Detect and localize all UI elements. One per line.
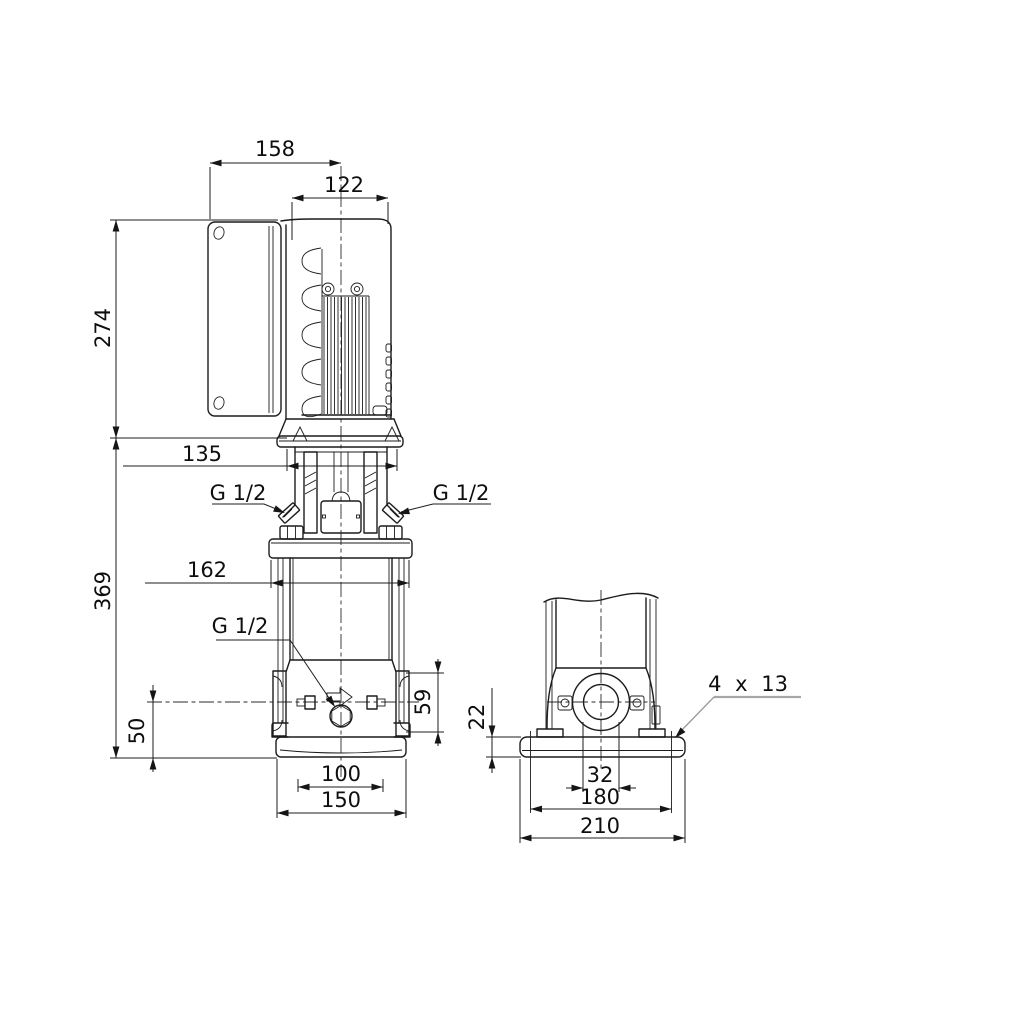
g12-right-label: G 1/2	[433, 481, 490, 505]
gauge-plug-right	[367, 696, 377, 709]
port-flange-right	[396, 671, 409, 736]
head-flange	[269, 539, 412, 558]
gauge-plug-left	[305, 696, 315, 709]
motor-fins	[324, 297, 366, 414]
front-view-pump-head	[269, 447, 412, 558]
hex-plug-right	[379, 526, 402, 539]
dim-135-label: 135	[182, 442, 222, 466]
dim-59-label: 59	[411, 689, 435, 716]
hex-plug-left	[280, 526, 303, 539]
g12-left-label: G 1/2	[210, 481, 267, 505]
dim-122-label: 122	[324, 173, 364, 197]
motor-screw-icon	[322, 283, 363, 295]
label-g12-vent-left: G 1/2	[210, 481, 287, 516]
dimension-59: 59	[406, 659, 444, 746]
label-mounting-holes: 4 x 13	[673, 672, 801, 740]
dim-22-label: 22	[465, 704, 489, 731]
front-view-motor	[208, 219, 403, 447]
dimension-122: 122	[292, 173, 388, 240]
g12-drain-label: G 1/2	[212, 614, 269, 638]
dimension-158: 158	[210, 137, 341, 219]
dim-162-label: 162	[187, 558, 227, 582]
pump-dimensional-drawing: 158 122 274 369 135	[0, 0, 1024, 1024]
side-view	[520, 593, 685, 757]
pump-dimensional-drawing-page: 158 122 274 369 135	[0, 0, 1024, 1024]
dimension-180: 180	[531, 785, 672, 812]
holes-label: 4 x 13	[708, 672, 788, 696]
clamp-left	[558, 696, 572, 710]
dim-158-label: 158	[255, 137, 295, 161]
port-flange-left	[273, 671, 286, 736]
dimension-162: 162	[145, 558, 409, 588]
dim-274-label: 274	[91, 308, 115, 348]
dim-32-label: 32	[587, 763, 614, 787]
dim-150-label: 150	[321, 788, 361, 812]
dim-100-label: 100	[321, 762, 361, 786]
guard-hatch	[305, 472, 376, 494]
dim-210-label: 210	[580, 814, 620, 838]
label-g12-vent-right: G 1/2	[397, 481, 491, 517]
dimension-50: 50	[125, 685, 156, 772]
box-screw-icon	[212, 395, 225, 410]
vent-plug-left	[278, 503, 300, 524]
foot-pad-right	[639, 729, 665, 737]
dimension-22: 22	[465, 688, 521, 773]
box-screw-icon	[212, 225, 225, 240]
foot-pad-left	[537, 729, 563, 737]
dimension-274: 274	[91, 220, 287, 438]
motor-stool	[277, 419, 403, 447]
label-g12-drain: G 1/2	[212, 614, 338, 709]
dim-50-label: 50	[125, 718, 149, 745]
dim-369-label: 369	[91, 571, 115, 611]
base-plate-side	[520, 737, 685, 757]
control-box	[208, 222, 281, 416]
clamp-right	[630, 696, 644, 710]
dim-180-label: 180	[580, 785, 620, 809]
